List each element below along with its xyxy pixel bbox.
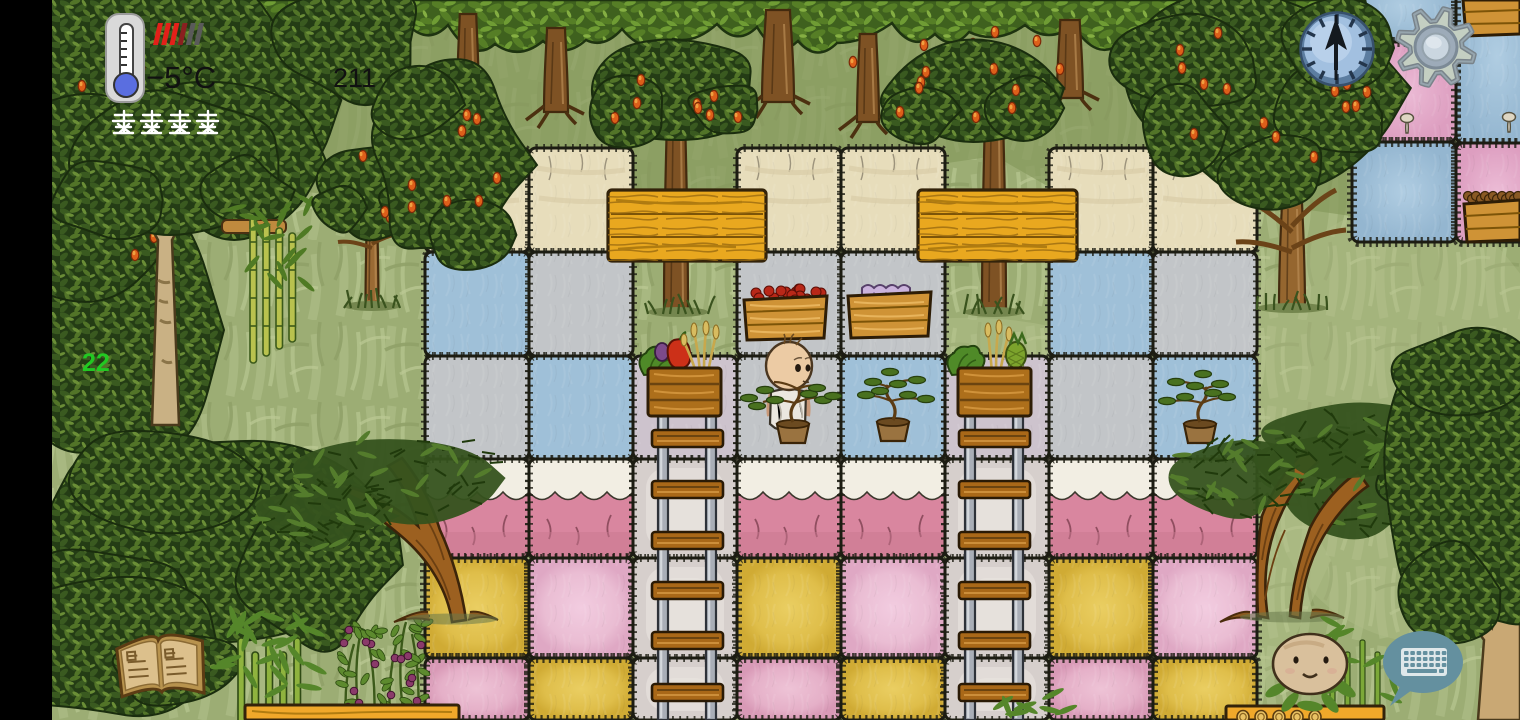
svg-text:211: 211 <box>333 63 376 93</box>
svg-text:−5°C: −5°C <box>146 60 216 95</box>
svg-text:22: 22 <box>82 349 110 377</box>
